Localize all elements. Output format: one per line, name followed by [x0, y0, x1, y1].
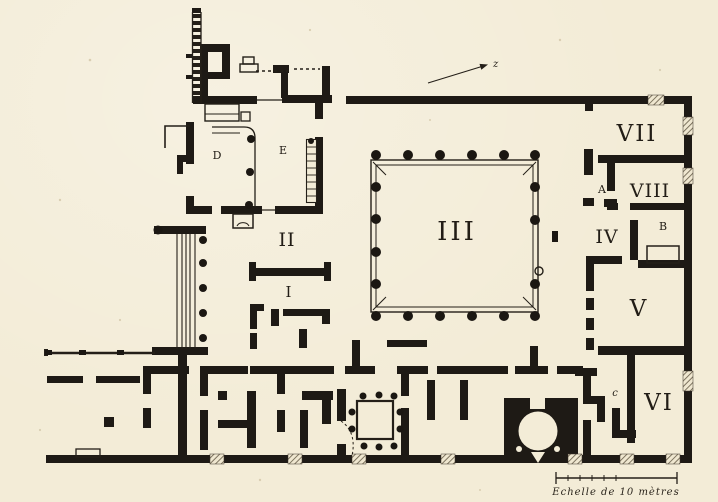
room-label-iv: IV: [595, 226, 618, 248]
room-label-iii: III: [437, 217, 477, 247]
room-label-i: I: [286, 283, 293, 301]
floor-plan-svg: z Echelle de 10 mètres I II III IV V VI …: [0, 0, 718, 502]
room-label-b: B: [659, 220, 667, 233]
plan-figure: z Echelle de 10 mètres I II III IV V VI …: [0, 0, 718, 502]
room-label-e: E: [279, 144, 287, 157]
room-label-c: c: [612, 388, 618, 399]
north-arrow-label: z: [492, 59, 499, 70]
room-label-ii: II: [278, 229, 295, 251]
scale-bar: Echelle de 10 mètres: [551, 472, 679, 498]
room-label-viii: VIII: [629, 180, 670, 202]
room-label-v: V: [629, 296, 649, 322]
north-arrow: z: [428, 59, 499, 83]
scale-caption: Echelle de 10 mètres: [551, 487, 679, 498]
columns: [45, 135, 558, 451]
room-label-a: A: [597, 183, 607, 196]
room-label-vi: VI: [643, 390, 674, 416]
room-label-d: D: [213, 149, 222, 162]
room-label-vii: VII: [616, 121, 658, 147]
